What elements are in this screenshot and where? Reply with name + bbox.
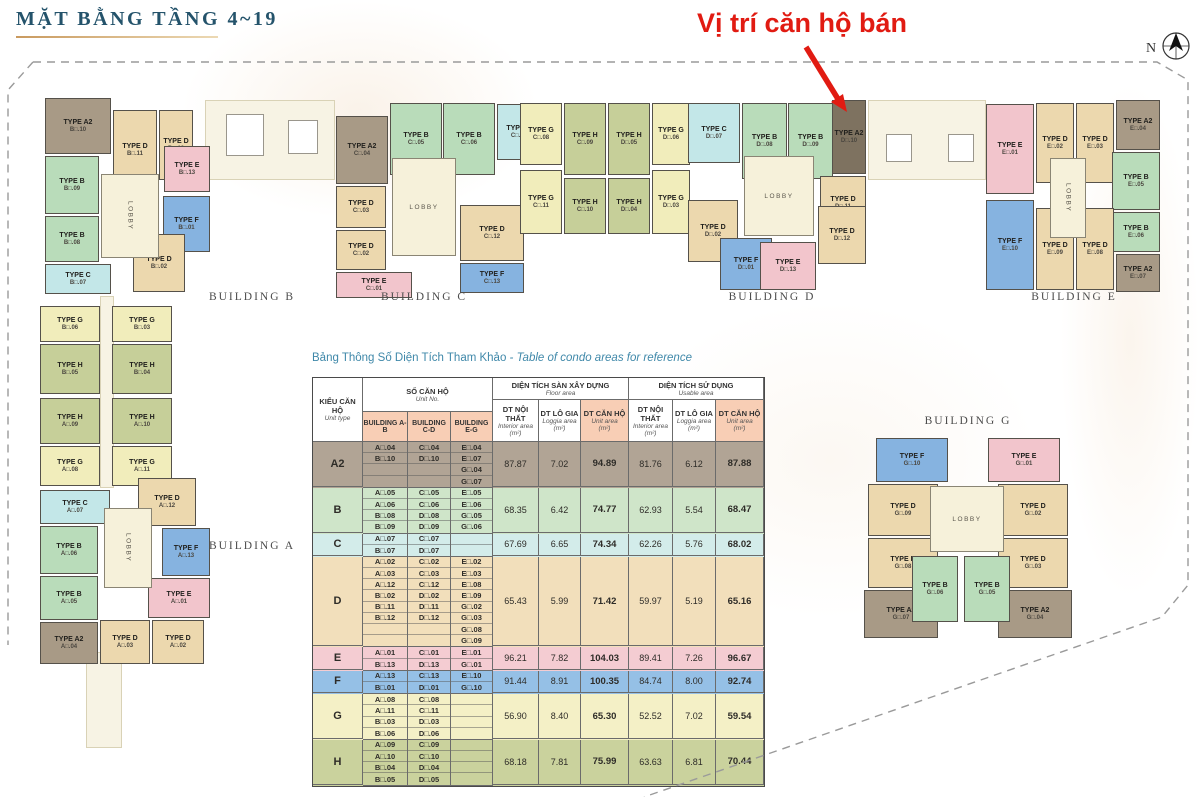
row-type-cell: E <box>313 647 363 669</box>
value-cell: 7.81 <box>539 740 581 785</box>
table-header: KIỂU CĂN HỘUnit typeSỐ CĂN HỘUnit No.BUI… <box>313 378 764 442</box>
building-label-a: BUILDING A <box>209 540 295 552</box>
unit-number-label: B□.02 <box>151 264 167 271</box>
unit-number-label: E□.09 <box>1047 250 1063 257</box>
unit-no-cell: G□.10 <box>451 682 492 693</box>
lobby-label: LOBBY <box>127 201 134 230</box>
unit-no-cell: D□.07 <box>408 545 450 556</box>
unit-type-label: TYPE E <box>776 259 801 267</box>
table-row-A2: A2A□.04B□.10C□.04D□.10E□.04E□.07G□.04G□.… <box>313 442 764 488</box>
value-cell: 62.26 <box>629 534 673 556</box>
value-cell: 8.40 <box>539 694 581 739</box>
value-cell: 89.41 <box>629 647 673 669</box>
unit-Bx.08: TYPE BB□.08 <box>45 216 99 262</box>
area-col-unit: (m²) <box>554 425 566 432</box>
value-cell: 87.88 <box>716 442 764 487</box>
unit-no-cell: B□.07 <box>363 545 407 556</box>
unit-col: A□.07B□.07 <box>363 534 408 557</box>
unit-number-label: E□.05 <box>1128 182 1144 189</box>
unit-Bx.07: TYPE CB□.07 <box>45 264 111 294</box>
building-label-e: BUILDING E <box>1031 291 1116 303</box>
unit-number-label: G□.04 <box>1027 615 1044 622</box>
header-floor-en: Floor area <box>546 390 576 397</box>
area-col-unit: (m²) <box>688 425 700 432</box>
unit-col: E□.01G□.01 <box>451 647 493 670</box>
header-building-1: BUILDING C-D <box>408 412 451 442</box>
unit-type-label: TYPE B <box>56 543 81 551</box>
value-cell: 74.77 <box>581 488 629 533</box>
value-cell: 6.81 <box>673 740 716 785</box>
area-col-unit: (m²) <box>599 425 611 432</box>
unit-number-label: D□.13 <box>780 267 796 274</box>
table-row-D: DA□.02A□.03A□.12B□.02B□.11B□.12C□.02C□.0… <box>313 557 764 648</box>
unit-Dx.04: TYPE HD□.04 <box>608 178 650 234</box>
unit-type-label: TYPE G <box>129 459 155 467</box>
value-cell: 5.99 <box>539 557 581 647</box>
unit-Cx.03: TYPE DC□.03 <box>336 186 386 228</box>
unit-number-label: E□.01 <box>1002 150 1018 157</box>
unit-type-label: TYPE D <box>1020 503 1045 511</box>
lobby-label: LOBBY <box>764 193 793 200</box>
unit-no-cell <box>363 464 407 475</box>
unit-type-label: TYPE C <box>701 126 726 134</box>
unit-no-cell: C□.11 <box>408 705 450 716</box>
area-col-en: Unit area <box>591 418 617 425</box>
unit-no-cell <box>451 740 492 751</box>
lobby-label: LOBBY <box>409 204 438 211</box>
unit-no-cell: D□.03 <box>408 717 450 728</box>
unit-number-label: C□.08 <box>533 135 549 142</box>
unit-number-label: A□.09 <box>62 422 78 429</box>
unit-type-label: TYPE B <box>403 132 428 140</box>
unit-no-cell <box>363 635 407 646</box>
area-table: KIỂU CĂN HỘUnit typeSỐ CĂN HỘUnit No.BUI… <box>312 377 765 787</box>
value-cell: 75.99 <box>581 740 629 785</box>
value-cell: 6.12 <box>673 442 716 487</box>
unit-number-label: E□.03 <box>1087 144 1103 151</box>
unit-type-label: TYPE H <box>57 414 82 422</box>
unit-Cx.13: TYPE FC□.13 <box>460 263 524 293</box>
unit-number-label: E□.04 <box>1130 126 1146 133</box>
unit-no-cell: C□.04 <box>408 442 450 453</box>
unit-no-cell: D□.08 <box>408 510 450 521</box>
unit-col: A□.04B□.10 <box>363 442 408 488</box>
unit-col: C□.02C□.03C□.12D□.02D□.11D□.12 <box>408 557 451 648</box>
unit-number-label: G□.10 <box>904 461 921 468</box>
unit-no-cell: A□.03 <box>363 568 407 579</box>
unit-Dx.10: TYPE A2D□.10 <box>832 100 866 174</box>
unit-no-cell <box>451 773 492 784</box>
value-cell: 7.82 <box>539 647 581 669</box>
unit-number-label: E□.07 <box>1130 274 1146 281</box>
value-cell: 70.44 <box>716 740 764 785</box>
unit-no-cell: A□.09 <box>363 740 407 751</box>
unit-Ax.02: TYPE DA□.02 <box>152 620 204 664</box>
unit-no-cell <box>408 635 450 646</box>
unit-col: A□.13B□.01 <box>363 671 408 694</box>
unit-number-label: E□.06 <box>1128 233 1144 240</box>
header-building-row: BUILDING A-BBUILDING C-DBUILDING E-G <box>363 412 493 442</box>
unit-type-label: TYPE B <box>798 134 823 142</box>
unit-no-cell: A□.04 <box>363 442 407 453</box>
unit-no-cell: D□.04 <box>408 762 450 773</box>
unit-no-cell: D□.05 <box>408 773 450 784</box>
unit-Gx.09: TYPE DG□.09 <box>868 484 938 536</box>
value-cell: 7.26 <box>673 647 716 669</box>
unit-type-label: TYPE A2 <box>1021 607 1050 615</box>
unit-no-cell: E□.07 <box>451 453 492 464</box>
area-col-vn: DT LÔ GIA <box>675 409 713 418</box>
unit-number-label: D□.08 <box>756 142 772 149</box>
unit-Ax.05: TYPE BA□.05 <box>40 576 98 620</box>
unit-type-label: TYPE B <box>1123 174 1148 182</box>
unit-no-cell: A□.06 <box>363 499 407 510</box>
unit-Dx.07: TYPE CD□.07 <box>688 103 740 163</box>
value-cell: 68.47 <box>716 488 764 533</box>
unit-number-label: D□.01 <box>738 265 754 272</box>
unit-Ax.08: TYPE GA□.08 <box>40 446 100 486</box>
unit-type-label: TYPE E <box>1012 453 1037 461</box>
unit-type-label: TYPE D <box>165 635 190 643</box>
unit-type-label: TYPE H <box>572 199 597 207</box>
unit-Gx.01: TYPE EG□.01 <box>988 438 1060 482</box>
lobby-label: LOBBY <box>952 516 981 523</box>
table-row-E: EA□.01B□.13C□.01D□.13E□.01G□.0196.217.82… <box>313 647 764 670</box>
unit-no-cell: E□.01 <box>451 647 492 658</box>
unit-number-label: A□.10 <box>134 422 150 429</box>
unit-Dx.06: TYPE GD□.06 <box>652 103 690 165</box>
unit-no-cell: C□.09 <box>408 740 450 751</box>
unit-type-label: TYPE G <box>129 317 155 325</box>
unit-type-label: TYPE D <box>1042 242 1067 250</box>
unit-number-label: E□.08 <box>1087 250 1103 257</box>
unit-no-cell <box>451 534 492 545</box>
building-label-c: BUILDING C <box>381 291 467 303</box>
value-cell: 81.76 <box>629 442 673 487</box>
unit-no-cell: C□.02 <box>408 557 450 568</box>
unit-type-label: TYPE B <box>56 591 81 599</box>
unit-number-label: B□.01 <box>178 225 194 232</box>
unit-no-cell: D□.09 <box>408 521 450 532</box>
area-col-en: Loggia area <box>677 418 711 425</box>
value-cell: 8.00 <box>673 671 716 693</box>
area-col-en: Unit area <box>726 418 752 425</box>
value-cell: 71.42 <box>581 557 629 647</box>
unit-number-label: A□.13 <box>178 553 194 560</box>
unit-no-cell: E□.09 <box>451 590 492 601</box>
lobby: LOBBY <box>930 486 1004 552</box>
lobby: LOBBY <box>1050 158 1086 238</box>
unit-no-cell: D□.02 <box>408 590 450 601</box>
unit-type-label: TYPE D <box>348 243 373 251</box>
unit-number-label: G□.07 <box>893 615 910 622</box>
value-cell: 104.03 <box>581 647 629 669</box>
header-usable-col-1: DT LÔ GIALoggia area(m²) <box>673 400 716 442</box>
header-floor-group: DIỆN TÍCH SÀN XÂY DỰNGFloor areaDT NỘI T… <box>493 378 629 442</box>
area-table-wrap: Bảng Thông Số Diện Tích Tham Khảo - Tabl… <box>312 352 782 787</box>
unit-number-label: C□.09 <box>577 140 593 147</box>
unit-col: A□.08A□.11B□.03B□.06 <box>363 694 408 740</box>
unit-no-cell: E□.08 <box>451 579 492 590</box>
unit-number-label: A□.05 <box>61 599 77 606</box>
unit-type-label: TYPE F <box>734 257 759 265</box>
building-label-b: BUILDING B <box>209 291 295 303</box>
header-usable-col-2: DT CĂN HỘUnit area(m²) <box>716 400 764 442</box>
lobby: LOBBY <box>392 158 456 256</box>
unit-Bx.09: TYPE BB□.09 <box>45 156 99 214</box>
unit-type-label: TYPE E <box>175 162 200 170</box>
unit-number-label: B□.05 <box>62 370 78 377</box>
unit-Dx.03: TYPE GD□.03 <box>652 170 690 234</box>
unit-Ax.06: TYPE BA□.06 <box>40 526 98 574</box>
unit-no-cell: E□.02 <box>451 557 492 568</box>
unit-type-label: TYPE H <box>129 414 154 422</box>
unit-no-cell <box>451 762 492 773</box>
row-type-cell: C <box>313 534 363 556</box>
row-type-cell: A2 <box>313 442 363 487</box>
unit-Ax.10: TYPE HA□.10 <box>112 398 172 444</box>
unit-no-cell <box>363 624 407 635</box>
value-cell: 96.67 <box>716 647 764 669</box>
unit-number-label: D□.02 <box>705 232 721 239</box>
unit-no-cell: B□.12 <box>363 613 407 624</box>
unit-Bx.05: TYPE HB□.05 <box>40 344 100 394</box>
unit-no-cell: D□.01 <box>408 682 450 693</box>
area-col-en: Interior area <box>498 423 533 430</box>
unit-no-cell: E□.05 <box>451 488 492 499</box>
unit-no-cell: G□.03 <box>451 613 492 624</box>
unit-type-label: TYPE C <box>65 272 90 280</box>
unit-Cx.12: TYPE DC□.12 <box>460 205 524 261</box>
value-cell: 59.54 <box>716 694 764 739</box>
unit-type-label: TYPE A2 <box>1124 266 1153 274</box>
unit-number-label: G□.03 <box>1025 564 1042 571</box>
unit-no-cell: C□.01 <box>408 647 450 658</box>
unit-Dx.12: TYPE DD□.12 <box>818 206 866 264</box>
lobby: LOBBY <box>744 156 814 236</box>
unit-Ax.01: TYPE EA□.01 <box>148 578 210 618</box>
header-building-label: BUILDING C-D <box>408 420 450 434</box>
unit-no-cell <box>451 751 492 762</box>
unit-number-label: B□.07 <box>70 280 86 287</box>
unit-no-cell: E□.04 <box>451 442 492 453</box>
unit-Cx.10: TYPE HC□.10 <box>564 178 606 234</box>
header-floor-col-2: DT CĂN HỘUnit area(m²) <box>581 400 629 442</box>
unit-no-cell: A□.11 <box>363 705 407 716</box>
unit-no-cell: A□.05 <box>363 488 407 499</box>
unit-number-label: A□.08 <box>62 467 78 474</box>
table-title-vn: Bảng Thông Số Diện Tích Tham Khảo <box>312 352 506 364</box>
unit-Dx.13: TYPE ED□.13 <box>760 242 816 290</box>
unit-col <box>451 694 493 740</box>
unit-col: E□.02E□.03E□.08E□.09G□.02G□.03G□.08G□.09 <box>451 557 493 648</box>
unit-no-cell: B□.11 <box>363 602 407 613</box>
unit-no-cell: C□.08 <box>408 694 450 705</box>
table-title: Bảng Thông Số Diện Tích Tham Khảo - Tabl… <box>312 352 782 364</box>
unit-type-label: TYPE D <box>348 200 373 208</box>
unit-col: C□.09C□.10D□.04D□.05 <box>408 740 451 786</box>
area-col-vn: DT NỘI THẤT <box>493 405 538 423</box>
header-usable-group: DIỆN TÍCH SỬ DỤNGUsable areaDT NỘI THẤTI… <box>629 378 764 442</box>
unit-number-label: C□.11 <box>533 203 549 210</box>
row-type-cell: F <box>313 671 363 693</box>
unit-number-label: C□.04 <box>354 151 370 158</box>
unit-number-label: D□.12 <box>834 236 850 243</box>
header-building-label: BUILDING E-G <box>451 420 492 434</box>
table-row-F: FA□.13B□.01C□.13D□.01E□.10G□.1091.448.91… <box>313 671 764 694</box>
unit-Cx.11: TYPE GC□.11 <box>520 170 562 234</box>
lobby: LOBBY <box>101 174 159 258</box>
unit-number-label: D□.10 <box>841 138 857 145</box>
value-cell: 68.02 <box>716 534 764 556</box>
lobby-label: LOBBY <box>125 533 132 562</box>
unit-Ex.01: TYPE EE□.01 <box>986 104 1034 194</box>
unit-type-label: TYPE H <box>616 199 641 207</box>
unit-type-label: TYPE D <box>122 143 147 151</box>
value-cell: 68.35 <box>493 488 539 533</box>
unit-no-cell: G□.09 <box>451 635 492 646</box>
unit-number-label: D□.05 <box>621 140 637 147</box>
value-cell: 92.74 <box>716 671 764 693</box>
unit-number-label: A□.07 <box>67 508 83 515</box>
area-col-vn: DT NỘI THẤT <box>629 405 672 423</box>
value-cell: 65.43 <box>493 557 539 647</box>
unit-type-label: TYPE A2 <box>835 130 864 138</box>
unit-type-label: TYPE G <box>57 317 83 325</box>
unit-no-cell: D□.10 <box>408 453 450 464</box>
value-cell: 91.44 <box>493 671 539 693</box>
unit-no-cell: A□.01 <box>363 647 407 658</box>
unit-no-cell: D□.13 <box>408 659 450 670</box>
unit-no-cell: E□.03 <box>451 568 492 579</box>
unit-col: E□.05E□.06G□.05G□.06 <box>451 488 493 534</box>
unit-Bx.10: TYPE A2B□.10 <box>45 98 111 154</box>
unit-type-label: TYPE D <box>700 224 725 232</box>
unit-col: A□.05A□.06B□.08B□.09 <box>363 488 408 534</box>
unit-type-label: TYPE B <box>974 582 999 590</box>
unit-number-label: B□.10 <box>70 127 86 134</box>
unit-Ax.07: TYPE CA□.07 <box>40 490 110 524</box>
unit-no-cell: C□.12 <box>408 579 450 590</box>
unit-number-label: C□.01 <box>366 286 382 293</box>
unit-number-label: C□.12 <box>484 234 500 241</box>
area-col-vn: DT CĂN HỘ <box>719 409 761 418</box>
unit-col: A□.01B□.13 <box>363 647 408 670</box>
unit-no-cell <box>408 624 450 635</box>
unit-no-cell <box>451 694 492 705</box>
header-floor-col-0: DT NỘI THẤTInterior area(m²) <box>493 400 539 442</box>
unit-type-label: TYPE G <box>57 459 83 467</box>
value-cell: 84.74 <box>629 671 673 693</box>
header-usable-vn: DIỆN TÍCH SỬ DỤNG <box>659 381 734 390</box>
unit-Ax.09: TYPE HA□.09 <box>40 398 100 444</box>
unit-type-label: TYPE F <box>480 271 505 279</box>
row-type-cell: D <box>313 557 363 647</box>
value-cell: 59.97 <box>629 557 673 647</box>
unit-col: A□.02A□.03A□.12B□.02B□.11B□.12 <box>363 557 408 648</box>
header-unit-no-title: SỐ CĂN HỘUnit No. <box>363 378 493 412</box>
header-floor-vn: DIỆN TÍCH SÀN XÂY DỰNG <box>512 381 610 390</box>
unit-Gx.06: TYPE BG□.06 <box>912 556 958 622</box>
value-cell: 96.21 <box>493 647 539 669</box>
unit-type-label: TYPE E <box>167 591 192 599</box>
value-cell: 5.19 <box>673 557 716 647</box>
row-type-cell: H <box>313 740 363 785</box>
value-cell: 67.69 <box>493 534 539 556</box>
unit-type-label: TYPE F <box>174 545 199 553</box>
unit-number-label: B□.04 <box>134 370 150 377</box>
unit-type-label: TYPE H <box>572 132 597 140</box>
unit-Bx.04: TYPE HB□.04 <box>112 344 172 394</box>
unit-no-cell: A□.08 <box>363 694 407 705</box>
unit-type-label: TYPE C <box>62 500 87 508</box>
unit-no-cell: B□.13 <box>363 659 407 670</box>
value-cell: 94.89 <box>581 442 629 487</box>
unit-no-cell: B□.04 <box>363 762 407 773</box>
unit-type-label: TYPE F <box>998 238 1023 246</box>
header-building-label: BUILDING A-B <box>363 420 407 434</box>
unit-no-cell: A□.13 <box>363 671 407 682</box>
unit-number-label: G□.09 <box>895 511 912 518</box>
area-col-en: Interior area <box>633 423 668 430</box>
value-cell: 65.30 <box>581 694 629 739</box>
unit-no-cell: D□.12 <box>408 613 450 624</box>
unit-number-label: D□.03 <box>663 203 679 210</box>
header-building-2: BUILDING E-G <box>451 412 493 442</box>
unit-type-label: TYPE F <box>174 217 199 225</box>
header-floor-title: DIỆN TÍCH SÀN XÂY DỰNGFloor area <box>493 378 629 400</box>
unit-Ex.06: TYPE BE□.06 <box>1112 212 1160 252</box>
unit-col: C□.08C□.11D□.03D□.06 <box>408 694 451 740</box>
unit-no-cell: A□.10 <box>363 751 407 762</box>
unit-number-label: B□.13 <box>179 170 195 177</box>
unit-type-label: TYPE B <box>59 232 84 240</box>
unit-col: E□.04E□.07G□.04G□.07 <box>451 442 493 488</box>
header-unit-no-group: SỐ CĂN HỘUnit No.BUILDING A-BBUILDING C-… <box>363 378 493 442</box>
unit-number-label: G□.05 <box>979 590 996 597</box>
unit-number-label: D□.09 <box>802 142 818 149</box>
unit-no-cell: A□.02 <box>363 557 407 568</box>
header-unit-no-vn: SỐ CĂN HỘ <box>406 387 449 396</box>
unit-type-label: TYPE H <box>616 132 641 140</box>
unit-no-cell: C□.07 <box>408 534 450 545</box>
unit-no-cell: C□.13 <box>408 671 450 682</box>
unit-number-label: B□.09 <box>64 186 80 193</box>
unit-type-label: TYPE B <box>1123 225 1148 233</box>
unit-no-cell: C□.06 <box>408 499 450 510</box>
unit-no-cell <box>451 705 492 716</box>
unit-no-cell: D□.06 <box>408 728 450 739</box>
area-col-unit: (m²) <box>510 430 522 437</box>
unit-number-label: E□.02 <box>1047 144 1063 151</box>
unit-type-label: TYPE E <box>362 278 387 286</box>
unit-number-label: A□.12 <box>159 503 175 510</box>
unit-number-label: A□.04 <box>61 644 77 651</box>
unit-col: A□.09A□.10B□.04B□.05 <box>363 740 408 786</box>
value-cell: 87.87 <box>493 442 539 487</box>
unit-number-label: B□.11 <box>127 151 143 158</box>
unit-no-cell: B□.01 <box>363 682 407 693</box>
unit-number-label: G□.08 <box>895 564 912 571</box>
value-cell: 74.34 <box>581 534 629 556</box>
unit-no-cell: G□.08 <box>451 624 492 635</box>
unit-Ax.04: TYPE A2A□.04 <box>40 622 98 664</box>
area-col-unit: (m²) <box>645 430 657 437</box>
elevator-core <box>226 114 264 156</box>
unit-no-cell: C□.10 <box>408 751 450 762</box>
value-cell: 100.35 <box>581 671 629 693</box>
unit-type-label: TYPE D <box>479 226 504 234</box>
